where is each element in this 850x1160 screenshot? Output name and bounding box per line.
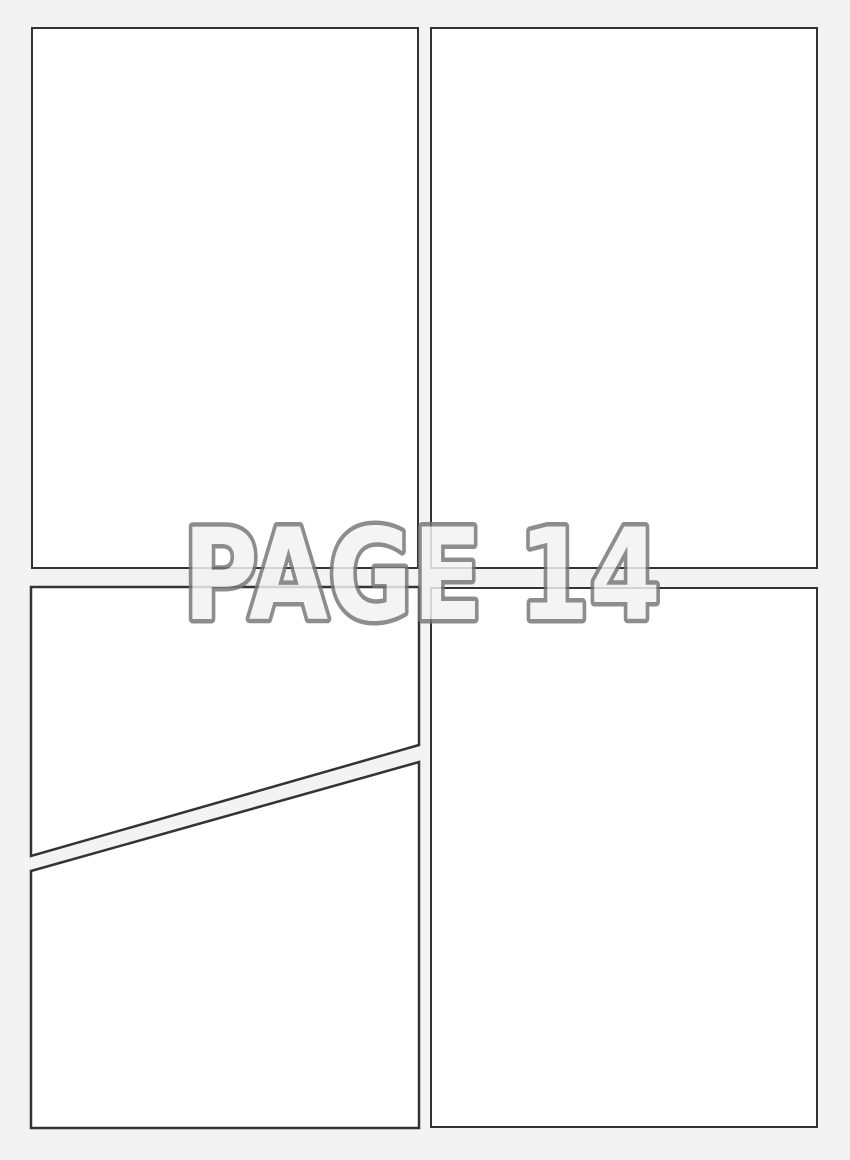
panel-bottom-left-group [0, 0, 850, 1160]
comic-page-template: PAGE 14 [0, 0, 850, 1160]
